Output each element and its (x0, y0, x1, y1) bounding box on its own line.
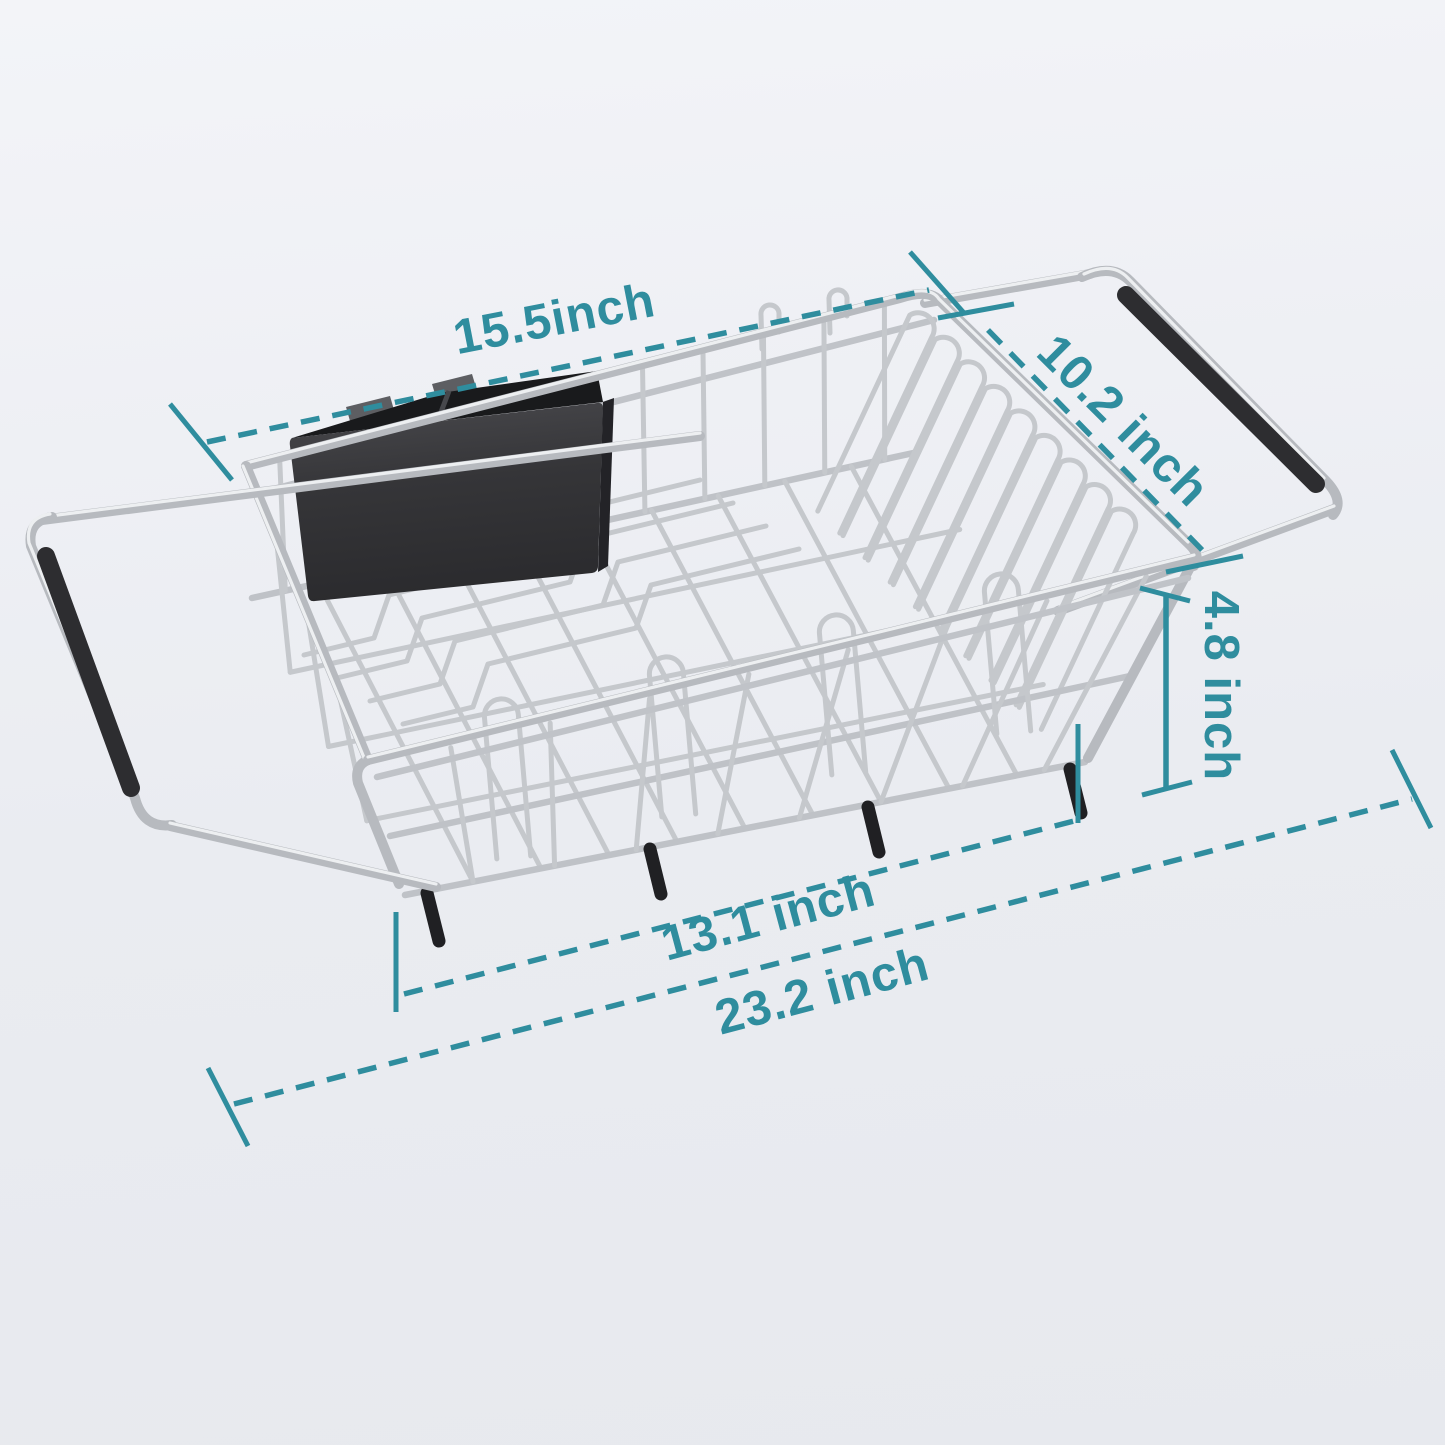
dimension-tick (1392, 750, 1431, 828)
dimension-label-height: 4.8 inch (1194, 591, 1248, 781)
wire (636, 699, 649, 850)
wire (703, 349, 705, 499)
dimension-label-inner-length: 13.1 inch (656, 863, 881, 972)
dimension-inner-length: 13.1 inch (396, 724, 1078, 1012)
dimension-line (234, 799, 1412, 1104)
product-dimensions-figure: 15.5inch 10.2 inch 4.8 inch 13.1 inch 23… (0, 0, 1445, 1445)
wire (824, 318, 825, 472)
dimension-label-extended-length: 23.2 inch (710, 937, 935, 1046)
wire (843, 337, 959, 557)
dimension-height: 4.8 inch (1140, 588, 1248, 795)
dimension-extended-length: 23.2 inch (208, 750, 1431, 1146)
left-handle-grip (46, 556, 131, 788)
wire (763, 334, 764, 486)
product-image: 15.5inch 10.2 inch 4.8 inch 13.1 inch 23… (0, 0, 1445, 1445)
dimension-tick (170, 404, 232, 480)
dimension-tick (208, 1068, 248, 1146)
